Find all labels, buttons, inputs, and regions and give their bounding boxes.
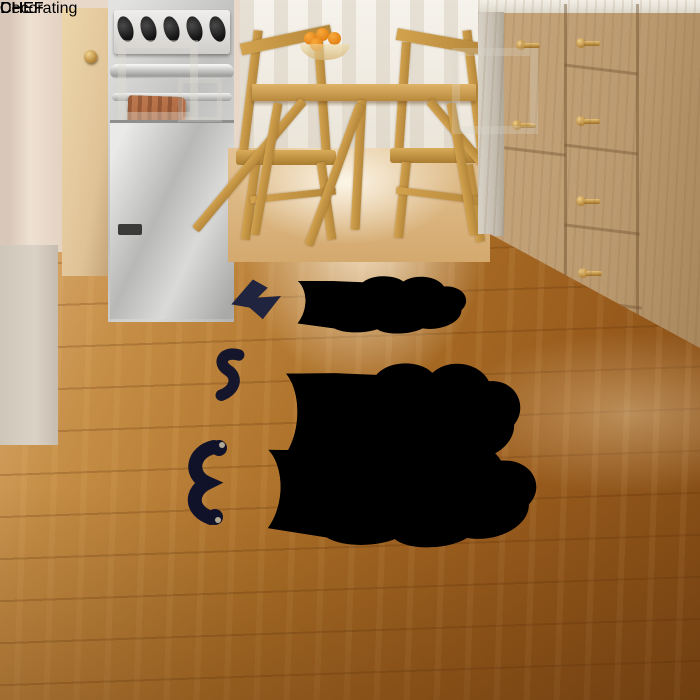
damask-swirl <box>54 300 106 352</box>
damask-swirl <box>560 450 652 542</box>
watermark-circle <box>178 78 222 122</box>
cabinet-knob-icon <box>84 50 97 63</box>
drawer-seam <box>564 223 640 235</box>
left-wall <box>0 0 62 252</box>
dining-nook <box>228 0 490 262</box>
damask-swirl <box>200 536 244 580</box>
kitchen-rug-photo: Decorating CHEF CHEF CHEF CHEF <box>0 0 700 700</box>
mustache-icon <box>166 438 238 526</box>
drawer-handle-icon <box>576 116 600 126</box>
mustache-icon <box>206 348 254 404</box>
oven-door <box>110 120 234 319</box>
door-knob-icon <box>648 36 665 53</box>
drawer-handle-icon <box>578 268 602 278</box>
chef-hat-icon <box>239 427 553 550</box>
watermark-circle <box>452 48 538 134</box>
cabinet-seam <box>636 4 639 348</box>
drawer-handle-icon <box>576 196 600 206</box>
damask-swirl <box>386 584 450 648</box>
stove-side-cabinet <box>62 8 111 276</box>
oven-vent <box>118 224 142 235</box>
drawer-seam <box>564 144 638 156</box>
drawer-seam <box>564 64 638 76</box>
mustache-icon <box>228 276 286 326</box>
chef-hat-icon <box>279 268 476 335</box>
countertop <box>478 0 700 13</box>
dining-table-top <box>252 84 476 101</box>
left-wall-lower <box>0 245 58 445</box>
drawer-seam <box>504 146 566 157</box>
drawer-handle-icon <box>576 38 600 48</box>
chef-text-near: CHEF <box>0 0 44 18</box>
